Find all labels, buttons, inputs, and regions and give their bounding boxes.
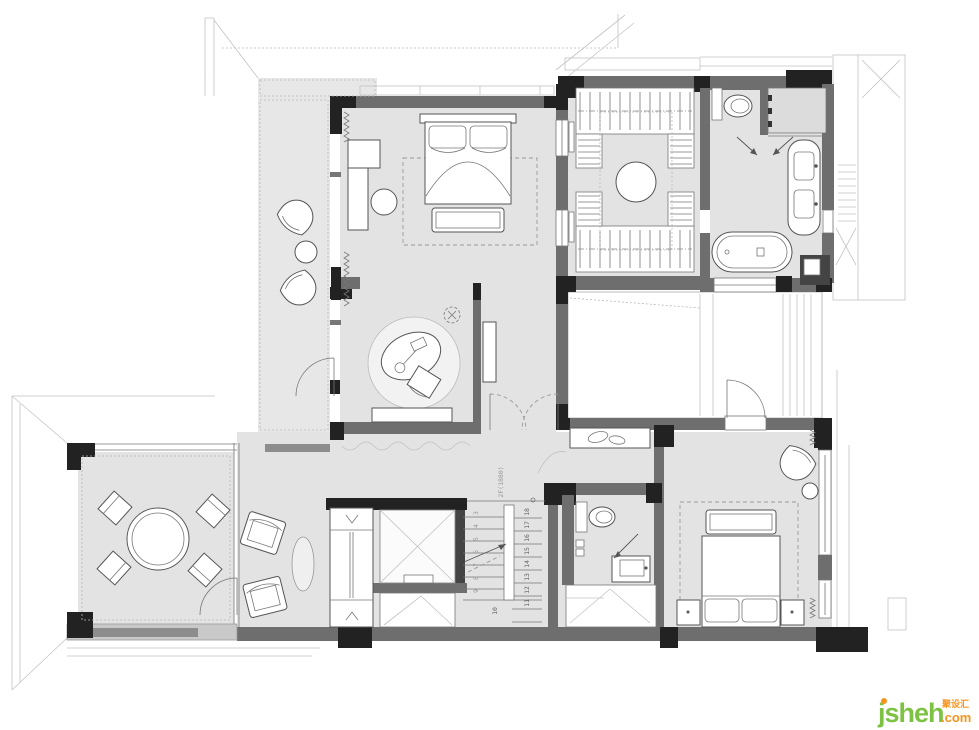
side-table	[802, 483, 818, 499]
study-low-cabinet	[372, 408, 452, 422]
tall-cabinet	[330, 508, 373, 627]
stair-number: 5	[472, 537, 480, 541]
watermark-cn-label: 聚设汇	[941, 698, 969, 709]
service-block	[330, 508, 455, 627]
closet-ottoman	[616, 162, 656, 202]
floor-plan-page: 3 4 5 6 7 8 9 10 18 17 16 15 14 13 12 11…	[0, 0, 979, 730]
bed-bench	[706, 510, 776, 534]
stair-number: 7	[472, 563, 480, 567]
stair-number: 3	[472, 511, 480, 515]
pillow	[705, 599, 739, 622]
upper-terrace-floor	[258, 78, 377, 98]
dressing-desk	[348, 140, 380, 168]
toilet-tank	[576, 502, 587, 532]
stair-number: 4	[472, 524, 480, 528]
toilet	[724, 95, 752, 117]
laundry-closet	[566, 585, 656, 627]
bathtub	[712, 232, 792, 272]
stair-divider	[504, 505, 514, 600]
watermark-brand: jsheh	[877, 698, 944, 728]
stair-number: 12	[523, 586, 531, 594]
stair-number: 14	[523, 560, 531, 568]
hall-cabinet	[483, 322, 496, 382]
terrace-table	[127, 508, 189, 570]
watermark-tld: .com	[941, 710, 971, 725]
desk-stool	[371, 189, 397, 215]
pillow	[742, 599, 777, 622]
watermark-logo: jsheh 聚设汇 .com	[877, 698, 971, 728]
wardrobe-right	[668, 134, 694, 168]
stair-number: 13	[523, 573, 531, 581]
wardrobe-left	[576, 134, 602, 168]
toilet	[589, 507, 615, 527]
toilet-tank	[712, 88, 722, 120]
sink	[794, 190, 814, 218]
stair-number: 10	[491, 607, 499, 615]
storage-room	[380, 593, 455, 627]
side-table	[295, 241, 317, 263]
stair-annotation: 2F(1880)	[497, 466, 505, 497]
elevator	[380, 510, 455, 583]
master-pillow	[470, 126, 507, 148]
watermark-j-dot-icon	[881, 698, 887, 704]
stair-number: 18	[523, 508, 531, 516]
console-table	[570, 428, 650, 448]
floor-plan-drawing: 3 4 5 6 7 8 9 10 18 17 16 15 14 13 12 11…	[0, 0, 979, 730]
master-pillow	[429, 126, 466, 148]
stair-number: 16	[523, 534, 531, 542]
stair-number: 6	[472, 550, 480, 554]
shower	[768, 88, 826, 133]
void-room	[568, 292, 822, 418]
stair-number: 15	[523, 547, 531, 555]
sink	[620, 560, 644, 576]
sink	[794, 152, 814, 180]
stair-number: 11	[523, 599, 531, 607]
stair-number: 8	[472, 576, 480, 580]
oval-rug	[292, 537, 314, 591]
stair-number: 17	[523, 521, 531, 529]
stair-number: 9	[472, 589, 480, 593]
